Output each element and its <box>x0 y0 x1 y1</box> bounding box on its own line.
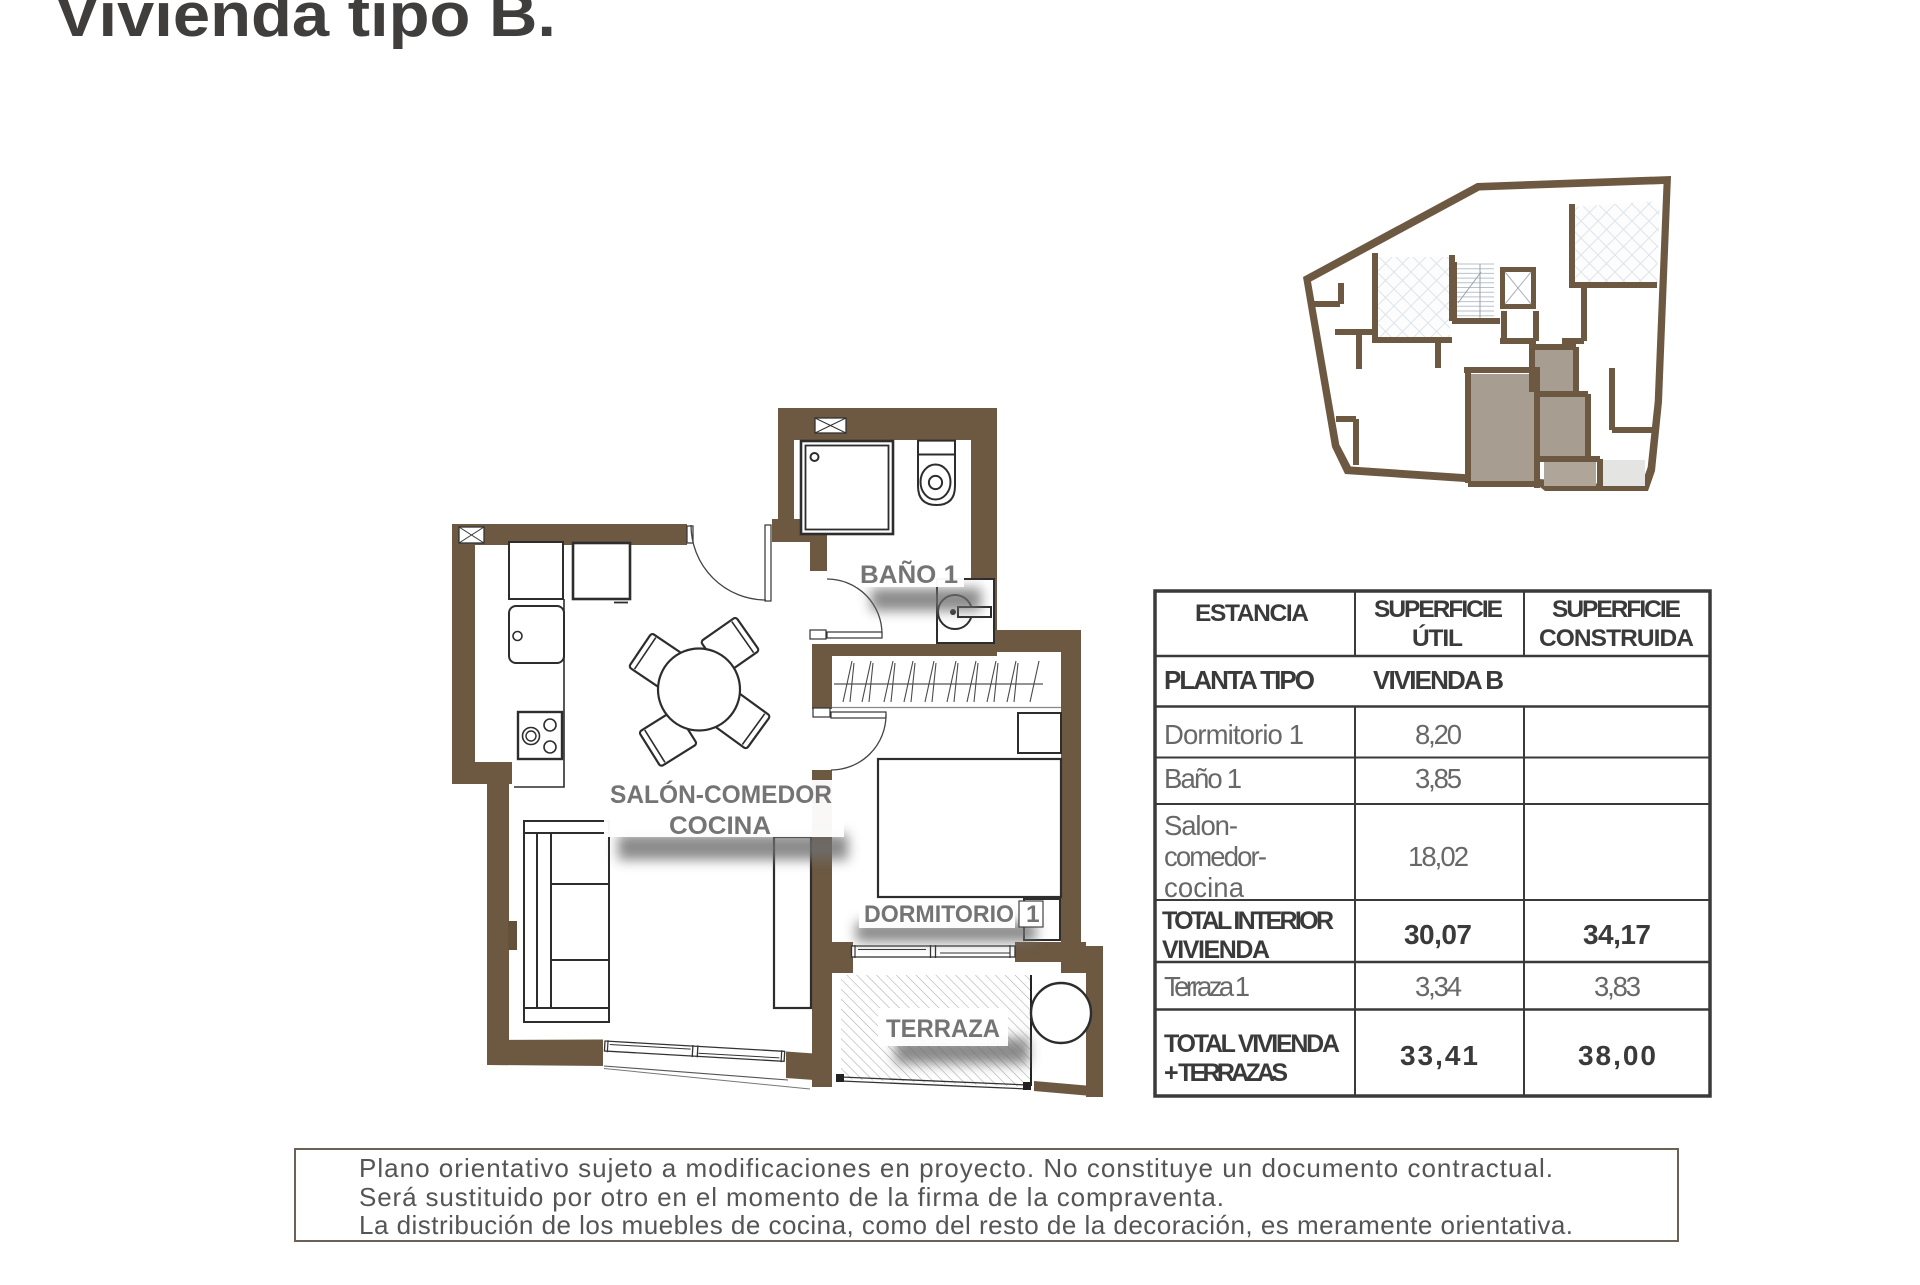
svg-text:La distribución de los muebles: La distribución de los muebles de cocina… <box>359 1210 1573 1240</box>
svg-text:PLANTA TIPO: PLANTA TIPO <box>1164 665 1315 695</box>
svg-text:18,02: 18,02 <box>1408 841 1469 872</box>
svg-text:cocina: cocina <box>1164 872 1245 903</box>
svg-text:ÚTIL: ÚTIL <box>1412 624 1463 652</box>
svg-text:Salon-: Salon- <box>1164 810 1238 841</box>
svg-text:SUPERFICIE: SUPERFICIE <box>1374 596 1503 623</box>
svg-text:34,17: 34,17 <box>1583 919 1651 950</box>
svg-text:33,41: 33,41 <box>1400 1040 1478 1071</box>
svg-text:Vivienda tipo B.: Vivienda tipo B. <box>55 0 556 50</box>
svg-text:VIVIENDA: VIVIENDA <box>1162 936 1270 964</box>
svg-text:1: 1 <box>1026 901 1040 928</box>
svg-text:+ TERRAZAS: + TERRAZAS <box>1164 1059 1288 1087</box>
svg-text:Dormitorio 1: Dormitorio 1 <box>1164 719 1304 750</box>
svg-text:Baño 1: Baño 1 <box>1164 763 1242 794</box>
svg-text:Terraza 1: Terraza 1 <box>1164 971 1250 1002</box>
svg-text:VIVIENDA B: VIVIENDA B <box>1373 665 1504 695</box>
svg-text:TOTAL VIVIENDA: TOTAL VIVIENDA <box>1164 1030 1340 1058</box>
svg-text:SALÓN-COMEDOR: SALÓN-COMEDOR <box>610 779 832 809</box>
svg-text:COCINA: COCINA <box>669 812 771 840</box>
svg-text:TOTAL INTERIOR: TOTAL INTERIOR <box>1162 907 1334 935</box>
svg-text:SUPERFICIE: SUPERFICIE <box>1552 596 1681 623</box>
svg-text:DORMITORIO: DORMITORIO <box>864 901 1014 928</box>
svg-text:BAÑO 1: BAÑO 1 <box>860 559 958 589</box>
svg-text:38,00: 38,00 <box>1578 1040 1656 1071</box>
svg-text:3,85: 3,85 <box>1415 763 1462 794</box>
svg-text:CONSTRUIDA: CONSTRUIDA <box>1539 625 1694 652</box>
svg-text:Plano orientativo sujeto a mod: Plano orientativo sujeto a modificacione… <box>359 1153 1553 1183</box>
svg-text:30,07: 30,07 <box>1404 919 1472 950</box>
svg-text:TERRAZA: TERRAZA <box>886 1015 1000 1043</box>
svg-text:comedor-: comedor- <box>1164 841 1267 872</box>
svg-text:3,34: 3,34 <box>1415 971 1462 1002</box>
svg-text:Será sustituido por otro en el: Será sustituido por otro en el momento d… <box>359 1182 1224 1212</box>
svg-text:8,20: 8,20 <box>1415 719 1462 750</box>
svg-text:ESTANCIA: ESTANCIA <box>1195 600 1309 627</box>
svg-text:3,83: 3,83 <box>1594 971 1641 1002</box>
